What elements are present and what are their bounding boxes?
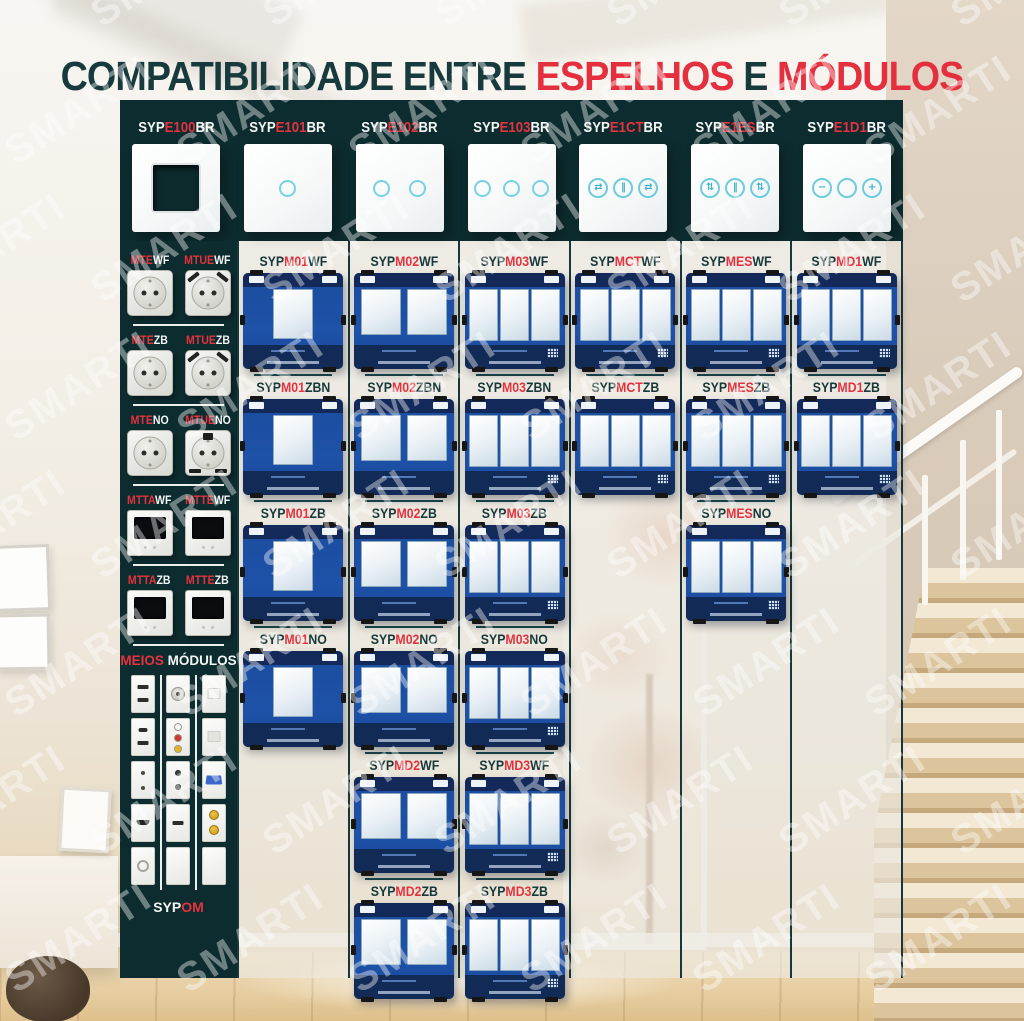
pcb-marking [489, 613, 541, 616]
module-rockers [357, 919, 451, 965]
product-label: SYPM02NO [356, 632, 452, 646]
mounting-tab [545, 900, 558, 905]
page-title: COMPATIBILIDADE ENTRE ESPELHOS E MÓDULOS [41, 53, 983, 100]
meios-module-usb-double [131, 675, 155, 713]
pcb-marking [271, 350, 305, 352]
mounting-tab [877, 270, 890, 275]
product-label: SYPE103BR [473, 120, 549, 135]
label-suffix: ZB [309, 505, 325, 521]
mounting-tab [250, 270, 263, 275]
qr-code [768, 348, 779, 358]
label-code: E1ES [722, 119, 756, 136]
module-card: SYPMESNO [682, 506, 791, 621]
label-prefix: SYP [701, 253, 726, 269]
product-cell: MTUEZB [184, 334, 232, 396]
module-sticker [876, 276, 891, 283]
socket-hole [153, 291, 158, 296]
module-column-band: SYPMCTWFSYPMCTZB [569, 241, 680, 978]
rocker-button [469, 289, 498, 341]
mounting-tab [323, 619, 336, 624]
touch-circle-icon [409, 180, 426, 197]
mounting-tab [895, 441, 900, 451]
label-code: MTE [130, 413, 152, 427]
touch-glyph-icon: ⇅ [750, 178, 770, 198]
qr-code [879, 474, 890, 484]
label-prefix: SYP [813, 379, 838, 395]
rocker-button [407, 415, 447, 461]
module-image [465, 651, 565, 747]
pcb-marking [382, 980, 416, 982]
mounting-tab [250, 648, 263, 653]
thermostat-dot [202, 546, 205, 549]
screw [148, 280, 151, 283]
product-label: SYPM02WF [356, 254, 452, 268]
module-rockers [246, 541, 340, 591]
pcb-marking [710, 487, 762, 490]
screw [206, 360, 209, 363]
mounting-tab [351, 693, 356, 703]
title-text: COMPATIBILIDADE ENTRE [61, 53, 536, 99]
pcb-marking [267, 613, 319, 616]
socket-usb2-image [185, 430, 231, 476]
touch-circle-icon [279, 180, 296, 197]
mounting-tab [240, 567, 245, 577]
label-code: MTE [130, 253, 152, 267]
mounting-tab [361, 900, 374, 905]
label-prefix: SYP [250, 119, 276, 136]
rocker-button [531, 793, 560, 845]
socket-usb-image [185, 350, 231, 396]
module-bottom-strip [686, 345, 786, 369]
mounting-tab [693, 367, 706, 372]
mounting-tab [804, 396, 817, 401]
mounting-tab [434, 619, 447, 624]
label-code: M02 [392, 379, 416, 395]
module-sticker [581, 402, 596, 409]
mounting-tab [351, 315, 356, 325]
module-image [354, 273, 454, 369]
module-card: SYPM02NO [350, 632, 459, 747]
product-label: SYPMESNO [688, 506, 784, 520]
rocker-button [580, 415, 609, 467]
module-card: SYPMD2WF [350, 758, 459, 873]
module-sticker [803, 276, 818, 283]
label-code: M02 [395, 631, 419, 647]
rocker-button [500, 415, 529, 467]
product-cell: MTTAWF [126, 494, 174, 556]
mounting-tab [250, 396, 263, 401]
usb-a-slot [138, 741, 149, 745]
rocker-button [361, 289, 401, 335]
module-card: SYPMCTWF [571, 254, 680, 369]
label-prefix: SYP [371, 505, 396, 521]
product-label: SYPE1D1BR [808, 120, 887, 135]
divider-line [476, 752, 554, 754]
mounting-tab [472, 367, 485, 372]
module-column-band: SYPM03WFSYPM03ZBNSYPM03ZBSYPM03NOSYPMD3W… [458, 241, 569, 978]
rocker-button [407, 793, 447, 839]
module-bottom-strip [243, 345, 343, 369]
label-code: MCT [615, 253, 642, 269]
divider-line [697, 500, 775, 502]
label-suffix: BR [195, 119, 214, 136]
mounting-tab [341, 567, 346, 577]
module-card: SYPMD2ZB [350, 884, 459, 999]
product-label: SYPMD2ZB [356, 884, 452, 898]
mounting-tab [361, 396, 374, 401]
espelho-cell: SYPE1ESBR⇅‖⇅ [679, 100, 791, 241]
rocker-button [531, 919, 560, 971]
rocker-button [753, 415, 782, 467]
mounting-tab [766, 619, 779, 624]
label-prefix: SYP [256, 379, 281, 395]
mounting-tab [434, 648, 447, 653]
pcb-marking [493, 350, 527, 352]
module-rockers [578, 415, 672, 467]
rocker-button [500, 793, 529, 845]
module-sticker [433, 654, 448, 661]
pcb-marking [378, 991, 430, 994]
module-image [575, 273, 675, 369]
top-port [203, 433, 213, 440]
module-rockers [578, 289, 672, 341]
module-card: SYPM01ZBN [239, 380, 348, 495]
label-code: M02 [396, 505, 420, 521]
rocker-button [469, 415, 498, 467]
module-image [465, 525, 565, 621]
module-sticker [249, 276, 264, 283]
mounting-tab [452, 945, 457, 955]
socket-hole [141, 371, 146, 376]
screw [206, 464, 209, 467]
mounting-tab [693, 270, 706, 275]
label-suffix: BR [756, 119, 775, 136]
label-suffix: WF [308, 253, 327, 269]
mounting-tab [462, 945, 467, 955]
thermostat-screen [192, 597, 224, 619]
label-prefix: SYP [482, 505, 507, 521]
thermostat-screen [192, 517, 224, 539]
pcb-marking [271, 476, 305, 478]
pcb-marking [382, 854, 416, 856]
module-bottom-strip [575, 471, 675, 495]
socket-well [133, 277, 166, 310]
pcb-marking [493, 476, 527, 478]
product-label: MTENO [130, 414, 168, 426]
rocker-button [531, 541, 560, 593]
pcb-marking [714, 602, 748, 604]
divider-line [254, 500, 332, 502]
socket-hole [211, 451, 216, 456]
module-card: SYPM03ZBN [460, 380, 569, 495]
connector-pin [176, 692, 180, 696]
module-sticker [765, 402, 780, 409]
qr-code [547, 978, 558, 988]
thermostat-dot [153, 626, 156, 629]
usb-slot [138, 698, 149, 702]
meios-module-f-connectors [202, 804, 226, 842]
product-label: SYPM01ZB [246, 506, 342, 520]
mounting-tab [545, 367, 558, 372]
mounting-tab [563, 567, 568, 577]
meios-module-coax [131, 847, 155, 885]
label-suffix: WF [752, 253, 771, 269]
rocker-button [407, 541, 447, 587]
product-label: MTUENO [185, 414, 231, 426]
rj45-icon [207, 731, 220, 742]
meios-module-usb-a [166, 804, 190, 842]
product-label: SYPMD2WF [356, 758, 452, 772]
thermostat-image [127, 510, 173, 556]
module-card: SYPMESZB [682, 380, 791, 495]
mounting-tab [673, 315, 678, 325]
label-suffix: ZB [421, 883, 437, 899]
module-card: SYPM02ZBN [350, 380, 459, 495]
rocker-button [863, 415, 892, 467]
usb-slot [138, 685, 149, 689]
qr-code [547, 474, 558, 484]
socket-well [133, 357, 166, 390]
stair-baluster [996, 410, 1002, 560]
module-card: SYPMESWF [682, 254, 791, 369]
rocker-button [469, 793, 498, 845]
mounting-tab [877, 367, 890, 372]
mounting-tab [452, 819, 457, 829]
meios-module-rj45 [202, 718, 226, 756]
label-code: M03 [507, 505, 531, 521]
pcb-marking [603, 476, 637, 478]
stair-baluster [960, 440, 966, 580]
mounting-tab [766, 270, 779, 275]
mounting-tab [341, 441, 346, 451]
module-sticker [360, 780, 375, 787]
pcb-marking [382, 602, 416, 604]
label-code: MES [727, 379, 754, 395]
rocker-button [469, 667, 498, 719]
module-rockers [246, 415, 340, 465]
pcb-marking [378, 361, 430, 364]
module-sticker [360, 402, 375, 409]
module-bottom-strip [243, 471, 343, 495]
meios-grid-column [160, 675, 195, 890]
module-card: SYPM03ZB [460, 506, 569, 621]
module-sticker [471, 402, 486, 409]
qr-code [547, 726, 558, 736]
meios-module-keystone-blank [202, 675, 226, 713]
rocker-button [273, 667, 313, 717]
mounting-tab [784, 441, 789, 451]
mounting-tab [563, 819, 568, 829]
module-sticker [433, 780, 448, 787]
product-cell: MTEWF [126, 254, 174, 316]
usb-c-slot [139, 728, 148, 732]
mounting-tab [240, 315, 245, 325]
divider-line [365, 500, 443, 502]
mounting-tab [434, 871, 447, 876]
pcb-marking [271, 602, 305, 604]
module-bottom-strip [354, 849, 454, 873]
socket-hole [141, 291, 146, 296]
mounting-tab [323, 367, 336, 372]
qr-code [547, 852, 558, 862]
espelho-plate: ⇅‖⇅ [691, 144, 779, 232]
pcb-marking [825, 350, 859, 352]
label-suffix: ZBN [305, 379, 330, 395]
label-suffix: ZB [864, 379, 880, 395]
mounting-tab [323, 522, 336, 527]
label-code: OM [181, 899, 204, 915]
module-sticker [692, 402, 707, 409]
touch-circles: ⇅‖⇅ [700, 178, 770, 198]
socket-hole [153, 451, 158, 456]
rca-jack-icon [174, 734, 182, 742]
module-image [465, 903, 565, 999]
module-bottom-strip [354, 597, 454, 621]
label-code: MTUE [185, 413, 215, 427]
mounting-tab [472, 648, 485, 653]
pcb-marking [271, 728, 305, 730]
module-bottom-strip [465, 471, 565, 495]
label-suffix: ZBN [526, 379, 551, 395]
module-sticker [322, 654, 337, 661]
module-rockers [800, 415, 894, 467]
module-card: SYPM02WF [350, 254, 459, 369]
rocker-button [500, 919, 529, 971]
coax-connector-icon [137, 860, 149, 872]
meios-module-blank [166, 847, 190, 885]
module-rockers [468, 793, 562, 845]
mounting-tab [361, 774, 374, 779]
label-prefix: SYP [812, 253, 837, 269]
product-label: SYPM03ZB [467, 506, 563, 520]
module-rockers [468, 289, 562, 341]
label-suffix: BR [307, 119, 326, 136]
label-prefix: SYP [591, 379, 616, 395]
module-card: SYPM03WF [460, 254, 569, 369]
product-label: SYPMCTZB [578, 380, 674, 394]
module-rockers [689, 541, 783, 593]
mounting-tab [472, 522, 485, 527]
rocker-button [361, 793, 401, 839]
espelho-cell: SYPE103BR [456, 100, 568, 241]
espelho-plate: −+ [803, 144, 891, 232]
module-rockers [246, 667, 340, 717]
rca-jack-icon [174, 723, 182, 731]
vga-connector-icon [205, 776, 222, 785]
module-image [797, 399, 897, 495]
mounting-tab [361, 997, 374, 1002]
label-suffix: NO [153, 413, 169, 427]
touch-glyph-icon: ‖ [725, 178, 745, 198]
rocker-button [580, 289, 609, 341]
label-suffix: ZB [643, 379, 659, 395]
rocker-button [407, 919, 447, 965]
label-code: MD2 [395, 883, 421, 899]
socket-hole [211, 371, 216, 376]
module-sticker [471, 528, 486, 535]
mounting-tab [655, 493, 668, 498]
keystone-blank-icon [207, 688, 220, 699]
pcb-marking [493, 854, 527, 856]
socket-image [127, 430, 173, 476]
label-code: MD2 [394, 757, 420, 773]
product-pair-row: MTEZBMTUEZB [120, 334, 237, 396]
product-label: SYPMD3WF [467, 758, 563, 772]
touch-circles [279, 180, 296, 197]
socket-image [127, 350, 173, 396]
qr-code [879, 348, 890, 358]
divider-line [476, 626, 554, 628]
pcb-marking [378, 613, 430, 616]
label-suffix: ZB [157, 573, 171, 587]
module-card: SYPMCTZB [571, 380, 680, 495]
mounting-tab [361, 270, 374, 275]
mounting-tab [462, 693, 467, 703]
meios-grid-column [195, 675, 230, 890]
meios-module-hdmi [131, 804, 155, 842]
module-rockers [468, 541, 562, 593]
label-suffix: WF [529, 253, 548, 269]
mounting-tab [545, 270, 558, 275]
product-label: SYPMD1WF [799, 254, 895, 268]
module-image [575, 399, 675, 495]
label-code: E101 [276, 119, 307, 136]
module-sticker [544, 402, 559, 409]
product-label: SYPMCTWF [578, 254, 674, 268]
mounting-tab [472, 871, 485, 876]
touch-circle-icon [532, 180, 549, 197]
rocker-button [531, 289, 560, 341]
module-rockers [357, 289, 451, 335]
label-code: MTE [131, 333, 153, 347]
divider-line [697, 374, 775, 376]
rocker-button [273, 289, 313, 339]
qr-code [657, 348, 668, 358]
label-code: MES [725, 253, 752, 269]
screw [148, 464, 151, 467]
module-image [354, 525, 454, 621]
label-prefix: SYP [261, 505, 286, 521]
mounting-tab [472, 745, 485, 750]
mounting-tab [452, 567, 457, 577]
meios-modules-grid [127, 675, 231, 890]
meios-title-red: MEIOS [120, 653, 164, 668]
mounting-tab [693, 396, 706, 401]
rocker-button [611, 289, 640, 341]
label-code: E100 [164, 119, 195, 136]
product-label: SYPM03ZBN [467, 380, 563, 394]
screw [148, 440, 151, 443]
label-code: MD3 [506, 883, 532, 899]
mounting-tab [545, 493, 558, 498]
module-sticker [544, 906, 559, 913]
label-code: M02 [395, 253, 419, 269]
mounting-tab [545, 619, 558, 624]
thermostat-screen [134, 517, 166, 539]
module-image [243, 651, 343, 747]
pcb-marking [489, 991, 541, 994]
module-sticker [360, 528, 375, 535]
picture-frame [0, 544, 51, 612]
mounting-tab [240, 693, 245, 703]
thermostat-dot [211, 626, 214, 629]
banana-jack-icon [175, 770, 181, 776]
label-suffix: BR [867, 119, 886, 136]
product-label: SYPE102BR [361, 120, 437, 135]
label-suffix: NO [530, 631, 548, 647]
round-connector-icon [171, 687, 185, 701]
label-suffix: WF [862, 253, 881, 269]
